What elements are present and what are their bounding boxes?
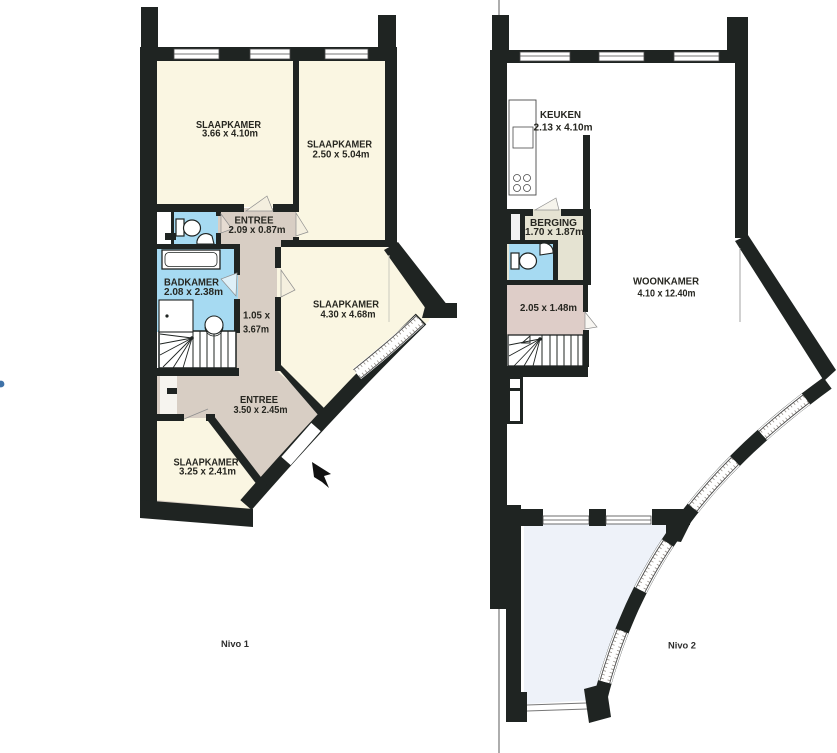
svg-text:3.50 x 2.45m: 3.50 x 2.45m — [234, 405, 288, 416]
svg-text:2.50 x 5.04m: 2.50 x 5.04m — [313, 150, 370, 161]
svg-text:3.25 x 2.41m: 3.25 x 2.41m — [179, 467, 236, 478]
svg-text:1.05 x: 1.05 x — [243, 311, 270, 322]
svg-text:2.13 x 4.10m: 2.13 x 4.10m — [534, 123, 593, 134]
svg-text:4.10 x 12.40m: 4.10 x 12.40m — [638, 288, 696, 299]
svg-text:2.08 x 2.38m: 2.08 x 2.38m — [164, 287, 223, 298]
svg-text:KEUKEN: KEUKEN — [540, 110, 581, 121]
svg-text:Nivo 1: Nivo 1 — [221, 639, 249, 649]
svg-text:WOONKAMER: WOONKAMER — [633, 277, 700, 288]
svg-text:3.67m: 3.67m — [243, 325, 269, 336]
svg-text:Nivo 2: Nivo 2 — [668, 641, 696, 651]
svg-text:3.66 x 4.10m: 3.66 x 4.10m — [202, 129, 258, 140]
svg-text:1.70 x 1.87m: 1.70 x 1.87m — [525, 227, 584, 238]
svg-text:4.30 x 4.68m: 4.30 x 4.68m — [321, 310, 376, 321]
svg-text:2.09 x 0.87m: 2.09 x 0.87m — [229, 225, 286, 236]
svg-text:2.05 x 1.48m: 2.05 x 1.48m — [520, 303, 577, 314]
